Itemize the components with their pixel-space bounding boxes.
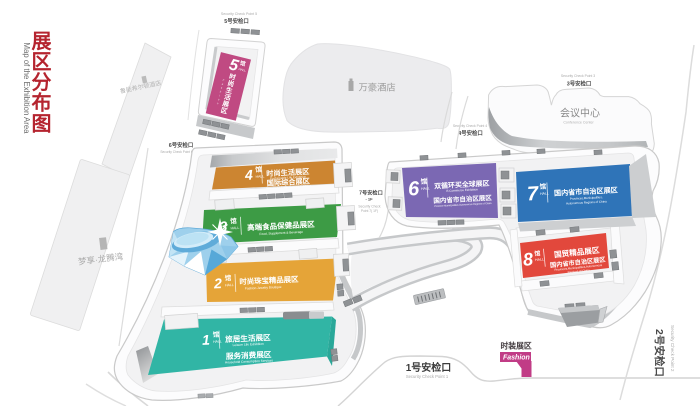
svg-text:Fashion: Fashion: [503, 355, 530, 362]
svg-text:Security Check Point 3: Security Check Point 3: [561, 74, 595, 78]
svg-text:Conference Center: Conference Center: [563, 121, 594, 125]
svg-text:展区分布图: 展区分布图: [32, 31, 52, 136]
svg-text:8: 8: [522, 249, 534, 270]
svg-text:Security Check: Security Check: [358, 205, 381, 209]
svg-text:馆: 馆: [230, 216, 237, 225]
svg-text:馆: 馆: [225, 273, 232, 282]
svg-text:HALL: HALL: [230, 226, 239, 230]
svg-text:6号安检口: 6号安检口: [169, 141, 194, 149]
svg-text:3号安检口: 3号安检口: [567, 79, 592, 87]
svg-text:HALL: HALL: [255, 174, 264, 178]
svg-text:7号安检口: 7号安检口: [359, 189, 383, 197]
svg-text:Security Check Point 5: Security Check Point 5: [221, 12, 257, 16]
svg-text:4: 4: [244, 167, 254, 183]
svg-text:2号安检口: 2号安检口: [653, 329, 666, 377]
svg-text:HALL: HALL: [213, 339, 222, 343]
svg-text:万豪酒店: 万豪酒店: [359, 82, 396, 93]
svg-text:1: 1: [202, 332, 211, 348]
svg-text:Security Check Point 2: Security Check Point 2: [670, 325, 675, 372]
svg-text:Security Check Point 4: Security Check Point 4: [453, 124, 487, 128]
svg-text:5号安检口: 5号安检口: [224, 17, 249, 25]
svg-text:- 1F: - 1F: [365, 196, 373, 201]
svg-text:4号安检口: 4号安检口: [458, 129, 483, 137]
svg-text:HALL: HALL: [421, 186, 430, 190]
svg-text:Point 7( 1F): Point 7( 1F): [361, 209, 378, 213]
svg-text:馆: 馆: [539, 181, 546, 190]
svg-text:2: 2: [213, 275, 223, 291]
svg-text:会议中心: 会议中心: [560, 107, 600, 120]
svg-text:6: 6: [407, 178, 420, 201]
svg-text:7: 7: [526, 183, 539, 206]
svg-text:HALL: HALL: [225, 283, 234, 287]
svg-text:1号安检口: 1号安检口: [406, 361, 452, 374]
svg-text:Security Check Point 6: Security Check Point 6: [160, 150, 192, 154]
svg-text:Security Check Point 1: Security Check Point 1: [406, 374, 449, 379]
svg-text:Map of the Exhibition Area: Map of the Exhibition Area: [22, 43, 31, 135]
svg-text:时装展区: 时装展区: [501, 341, 532, 351]
